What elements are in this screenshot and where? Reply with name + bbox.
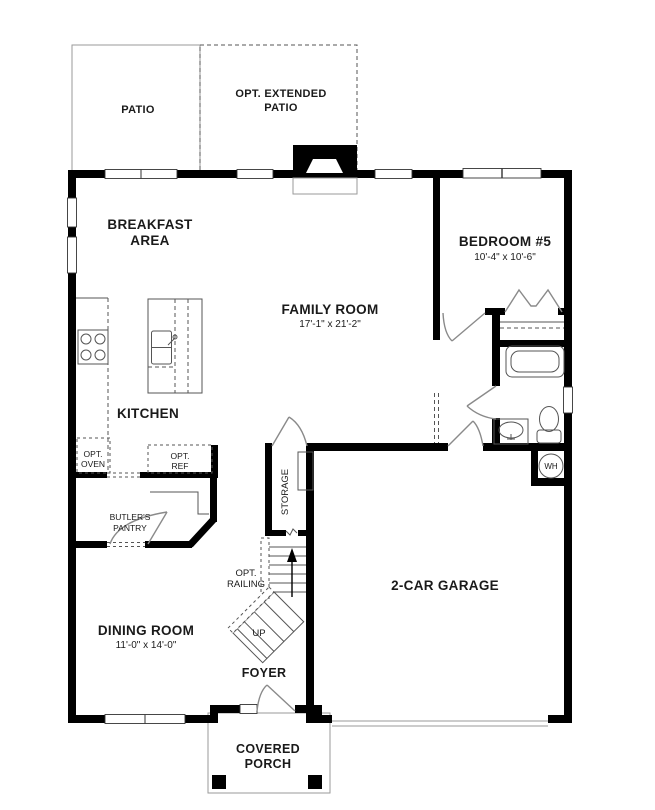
garage-label: 2-CAR GARAGE xyxy=(391,578,499,593)
opt-ref-label-line1: OPT. xyxy=(171,451,190,461)
staircase: OPT. RAILING UP xyxy=(227,538,306,663)
butlers-pantry-counter xyxy=(150,492,209,514)
butlers-pantry-label-line1: BUTLER'S xyxy=(110,512,151,522)
opt-ref-label-line2: REF xyxy=(172,461,189,471)
garage-entry-door xyxy=(448,421,483,446)
kitchen-counter xyxy=(76,298,108,472)
covered-porch-label-line2: PORCH xyxy=(245,757,292,771)
opt-oven-label-line1: OPT. xyxy=(84,449,103,459)
butlers-pantry-label-line2: PANTRY xyxy=(113,523,147,533)
toilet xyxy=(537,407,561,444)
left-wall-window-1 xyxy=(68,198,77,227)
stair-winders xyxy=(228,587,304,663)
bedroom5-door xyxy=(443,313,485,341)
fireplace xyxy=(293,145,357,194)
left-wall-window-2 xyxy=(68,237,77,273)
covered-porch-area: COVERED PORCH xyxy=(208,713,330,793)
water-heater: WH xyxy=(539,454,563,478)
bathtub xyxy=(506,346,564,377)
opt-railing-label-line2: RAILING xyxy=(227,579,265,590)
water-heater-label: WH xyxy=(544,462,558,471)
patio-area: PATIO xyxy=(72,45,200,171)
family-room-label: FAMILY ROOM xyxy=(281,302,378,317)
dining-room-label: DINING ROOM xyxy=(98,623,194,638)
patio-label: PATIO xyxy=(121,104,155,116)
covered-porch-label-line1: COVERED xyxy=(236,742,300,756)
porch-column-right xyxy=(308,775,322,789)
entry-sidelight-window xyxy=(240,705,257,714)
storage-door xyxy=(272,417,307,446)
stair-direction-arrow xyxy=(287,548,297,562)
cooktop xyxy=(78,330,108,364)
opt-oven: OPT. OVEN xyxy=(77,438,110,473)
island-sink xyxy=(152,331,178,364)
breakfast-area-label-line1: BREAKFAST xyxy=(107,217,193,232)
bedroom5-dims: 10'-4" x 10'-6" xyxy=(474,252,536,263)
up-label: UP xyxy=(252,628,265,639)
kitchen-island xyxy=(148,299,202,393)
bedroom5-label: BEDROOM #5 xyxy=(459,234,551,249)
bedroom-closet xyxy=(500,290,564,328)
family-window-left xyxy=(237,170,273,179)
stair-railing-lower xyxy=(228,587,274,633)
storage-label: STORAGE xyxy=(280,469,291,515)
opt-oven-label-line2: OVEN xyxy=(81,459,105,469)
opt-extended-patio-label-line1: OPT. EXTENDED xyxy=(235,88,326,100)
porch-column-left xyxy=(212,775,226,789)
garage-door xyxy=(332,721,548,726)
opt-extended-patio-label-line2: PATIO xyxy=(264,102,298,114)
family-window-right xyxy=(375,170,412,179)
floor-plan-drawing: PATIO OPT. EXTENDED PATIO COVERED PORCH xyxy=(0,0,655,810)
opt-ref: OPT. REF xyxy=(148,445,212,473)
kitchen-label: KITCHEN xyxy=(117,406,179,421)
bathroom-window xyxy=(564,387,573,413)
doors xyxy=(110,313,496,711)
breakfast-area-label-line2: AREA xyxy=(130,233,169,248)
floor-plan-page: PATIO OPT. EXTENDED PATIO COVERED PORCH xyxy=(0,0,655,810)
dining-room-dims: 11'-0" x 14'-0" xyxy=(116,640,177,651)
opt-railing-label-line1: OPT. xyxy=(235,568,256,579)
foyer-label: FOYER xyxy=(242,666,287,680)
bathroom-door xyxy=(467,386,496,419)
front-door xyxy=(257,685,295,711)
bifold-closet-doors xyxy=(505,290,562,312)
family-room-dims: 17'-1" x 21'-2" xyxy=(299,319,361,330)
